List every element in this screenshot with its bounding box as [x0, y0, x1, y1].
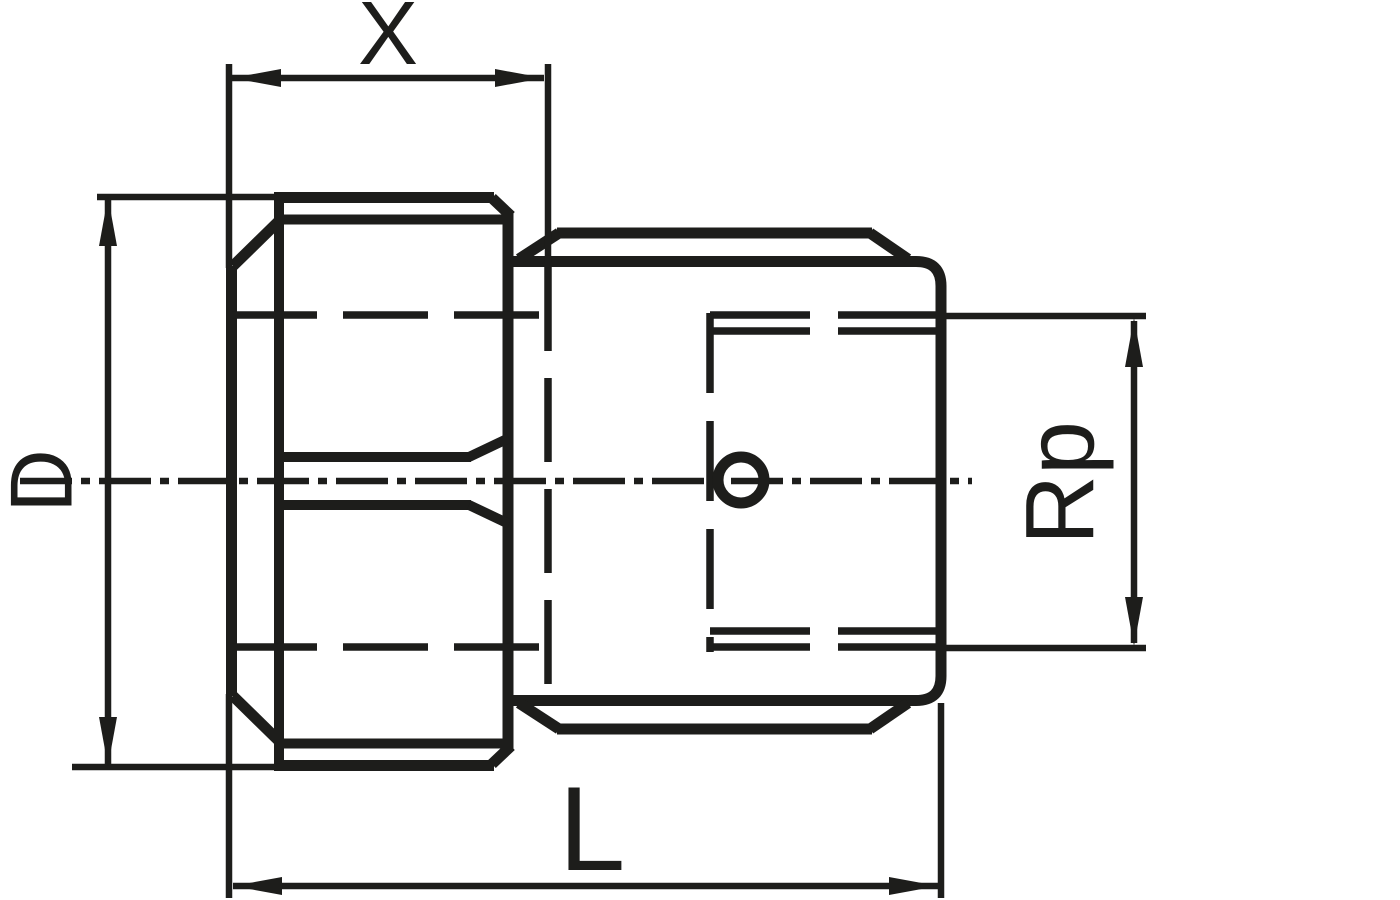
- dimension-rp-label: Rp: [1006, 421, 1115, 545]
- dimension-rp-top-arrowhead: [1125, 318, 1143, 367]
- body-bottom-left-chamfer-diagonal: [519, 703, 559, 729]
- internal-bore-channel: [283, 438, 509, 524]
- dimension-l-left-arrowhead: [233, 877, 282, 895]
- dimension-rp: Rp: [946, 316, 1146, 648]
- body-top-left-chamfer-diagonal: [519, 233, 559, 259]
- fitting-section-drawing: X D L Rp: [0, 0, 1400, 900]
- body-top-right-chamfer-diagonal: [870, 233, 908, 259]
- body-bottom-right-chamfer-diagonal: [870, 703, 908, 729]
- dimension-l-label: L: [559, 762, 626, 896]
- technical-drawing-canvas: X D L Rp: [0, 0, 1400, 900]
- dimension-d-top-arrowhead: [99, 197, 117, 246]
- dimension-d-label: D: [0, 449, 91, 513]
- dimension-x-right-arrowhead: [495, 69, 544, 87]
- dimension-x-label: X: [358, 0, 418, 84]
- dimension-d-bottom-arrowhead: [99, 717, 117, 766]
- dimension-x-left-arrowhead: [232, 69, 281, 87]
- dimension-rp-bottom-arrowhead: [1125, 597, 1143, 646]
- dimension-l-right-arrowhead: [889, 877, 938, 895]
